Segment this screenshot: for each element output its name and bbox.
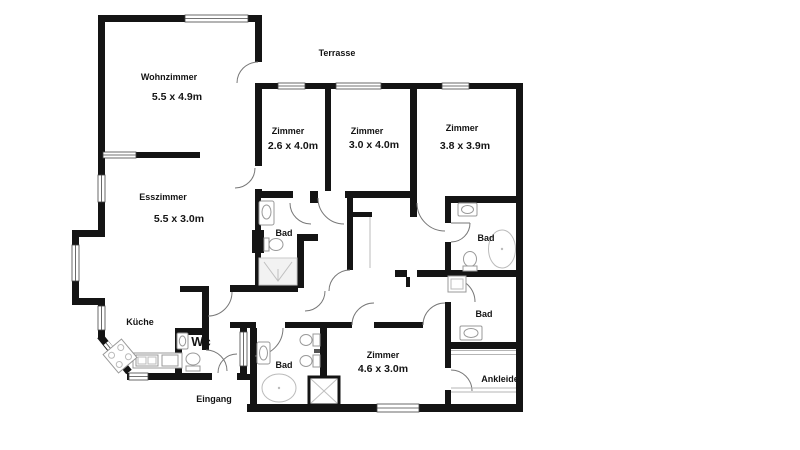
room-label-wc: Wc [191, 334, 211, 349]
room-label-zimmer-3: Zimmer [446, 123, 479, 133]
door-arc-wc [206, 350, 227, 371]
wall [247, 322, 256, 328]
door-arc-corridor-end [423, 303, 445, 325]
wall [255, 191, 293, 198]
room-label-bad-4: Bad [275, 360, 292, 370]
window [103, 152, 136, 158]
window [98, 175, 105, 202]
sink-icon [257, 342, 270, 364]
door-arc-zimmer-2-6 [235, 168, 255, 188]
wall [347, 198, 353, 270]
room-label-bad-2: Bad [477, 233, 494, 243]
tap-icon [314, 349, 320, 353]
outdoor-label-eingang: Eingang [196, 394, 232, 404]
wall [310, 191, 318, 203]
wall [98, 15, 105, 237]
room-label-zimmer-4: Zimmer [367, 350, 400, 360]
wall [255, 89, 262, 166]
sink-icon [259, 201, 274, 225]
wall [445, 322, 451, 328]
wall [410, 89, 417, 217]
door-arc-corridor-hall [305, 291, 325, 311]
outdoor-label-terrasse: Terrasse [319, 48, 356, 58]
room-dims-zimmer-2: 3.0 x 4.0m [349, 139, 399, 151]
door-arc-hall-bottom [329, 270, 350, 291]
wall [325, 89, 331, 191]
door-arc-bad-2 [451, 223, 470, 242]
wall [255, 15, 262, 62]
door-arc-terrasse [237, 62, 258, 83]
door-arc-zimmer-4-6 [352, 303, 374, 325]
wall [230, 285, 298, 292]
wall [148, 373, 212, 380]
room-label-ankleide: Ankleide [481, 374, 519, 384]
door-arc-kueche [208, 292, 232, 316]
toilet-icon [264, 238, 283, 251]
room-dims-zimmer-4: 4.6 x 3.0m [358, 363, 408, 375]
window [336, 83, 381, 89]
shower-icon [448, 276, 466, 292]
toilet-icon [186, 353, 200, 371]
kitchen-counter [133, 353, 182, 368]
room-label-bad-3: Bad [475, 309, 492, 319]
wall [406, 277, 410, 287]
room-dims-esszimmer: 5.5 x 3.0m [154, 213, 204, 225]
wall [445, 242, 451, 277]
floor-plan-canvas: Wohnzimmer 5.5 x 4.9m Terrasse Zimmer 2.… [0, 0, 800, 450]
room-dims-wohnzimmer: 5.5 x 4.9m [152, 91, 202, 103]
bidet-icon [300, 355, 320, 367]
wall [327, 322, 352, 328]
wall [297, 234, 318, 241]
window [129, 373, 148, 380]
door-arc-bad-1 [290, 203, 311, 224]
window [442, 83, 469, 89]
wall [516, 83, 523, 412]
shower-icon [259, 258, 297, 285]
room-label-bad-1: Bad [275, 228, 292, 238]
door-arc-zimmer-3-8 [417, 203, 445, 231]
window [72, 245, 79, 281]
wall [230, 322, 240, 328]
room-label-zimmer-1: Zimmer [272, 126, 305, 136]
toilet-icon [463, 252, 477, 272]
wall [445, 390, 451, 406]
window [240, 332, 247, 366]
bathtub-icon [262, 374, 296, 402]
sink-icon [177, 333, 188, 349]
window [185, 15, 248, 22]
floor-plan: Wohnzimmer 5.5 x 4.9m Terrasse Zimmer 2.… [0, 0, 800, 450]
wall [250, 328, 257, 412]
wardrobe-shelves [451, 351, 516, 393]
wall [320, 322, 327, 376]
room-label-kueche: Küche [126, 317, 154, 327]
room-label-wohnzimmer: Wohnzimmer [141, 72, 198, 82]
wall [345, 191, 417, 198]
sink-icon [458, 203, 477, 216]
wall [285, 322, 327, 328]
window [98, 306, 105, 330]
room-label-zimmer-2: Zimmer [351, 126, 384, 136]
wall [445, 342, 523, 349]
room-dims-zimmer-1: 2.6 x 4.0m [268, 140, 318, 152]
wall [374, 322, 423, 328]
window [377, 404, 419, 412]
sink-icon [460, 326, 482, 340]
door-arc-zimmer-3-0 [318, 198, 344, 224]
wall [445, 196, 451, 223]
toilet-icon [300, 334, 320, 346]
wall-flue [252, 230, 264, 253]
shower-icon [309, 377, 339, 405]
wall [395, 270, 407, 277]
window [278, 83, 305, 89]
wall [297, 241, 304, 288]
wall [445, 196, 523, 203]
wall [445, 349, 451, 368]
wall-closet [353, 212, 372, 217]
walls [72, 15, 523, 412]
room-dims-zimmer-3: 3.8 x 3.9m [440, 140, 490, 152]
room-label-esszimmer: Esszimmer [139, 192, 187, 202]
